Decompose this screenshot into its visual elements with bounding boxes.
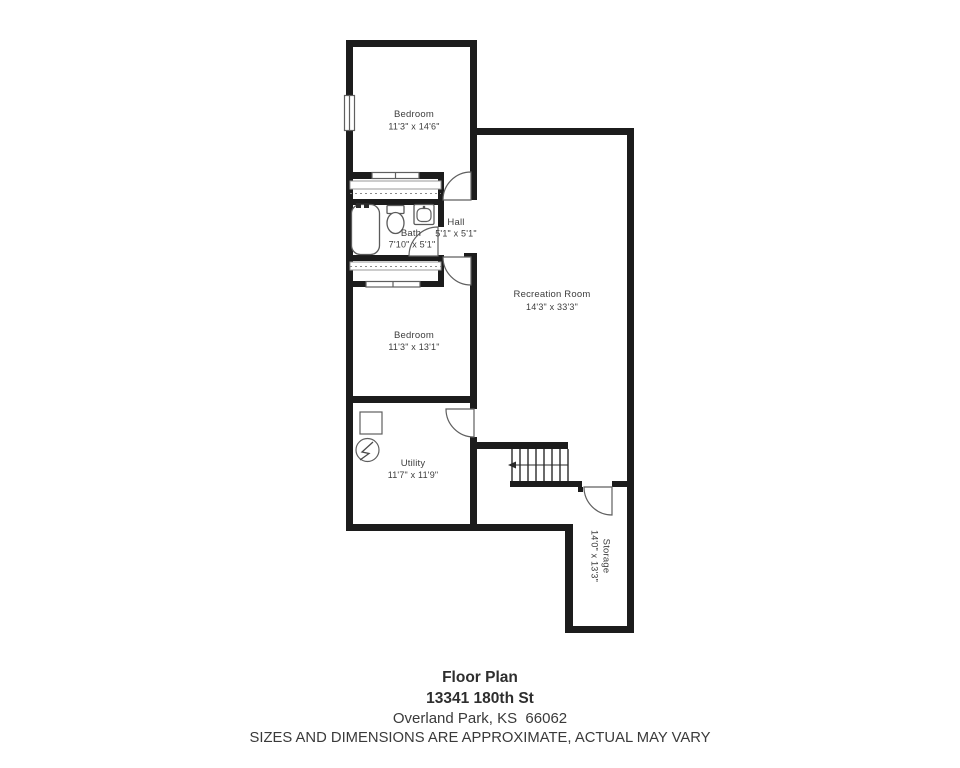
door-swing-utility — [446, 409, 474, 437]
room-label-hall: Hall — [447, 217, 464, 228]
room-label-utility: Utility — [401, 458, 426, 469]
plan-title: Floor Plan — [442, 669, 518, 686]
bathtub-icon — [352, 205, 380, 255]
address-line-1: 13341 180th St — [426, 690, 534, 707]
room-dims-recreation-room: 14'3" x 33'3" — [526, 302, 578, 312]
room-label-bedroom-2: Bedroom — [394, 330, 434, 341]
room-label-recreation-room: Recreation Room — [514, 289, 591, 300]
floor-plan-canvas: Bedroom 11'3" x 14'6" Bath 7'10" x 5'1" … — [0, 0, 960, 768]
staircase — [508, 449, 568, 481]
wall-segment — [565, 524, 573, 633]
door-swing-bedroom1 — [443, 172, 471, 200]
sink-faucet-icon — [423, 206, 426, 209]
closet-shelf — [350, 181, 441, 189]
room-label-storage-group: Storage 14'0" x 13'3" — [590, 530, 612, 582]
wall-segment — [612, 481, 634, 487]
room-dims-bedroom-1: 11'3" x 14'6" — [388, 122, 439, 132]
wall-segment — [346, 524, 573, 531]
lightning-bolt-icon — [360, 442, 373, 460]
wall-segment — [346, 172, 373, 179]
wall-segment — [346, 396, 477, 403]
wall-segment — [470, 437, 477, 531]
door-jamb — [578, 487, 583, 492]
wall-segment — [510, 481, 582, 487]
floor-plan-page: Bedroom 11'3" x 14'6" Bath 7'10" x 5'1" … — [0, 0, 960, 768]
room-dims-utility: 11'7" x 11'9" — [388, 470, 439, 480]
room-dims-bath: 7'10" x 5'1" — [389, 240, 436, 250]
utility-fixtures — [356, 412, 382, 462]
water-heater-icon — [360, 412, 382, 434]
tub-faucet-icon — [356, 203, 361, 208]
footer: Floor Plan 13341 180th St Overland Park,… — [249, 669, 710, 746]
disclaimer-text: SIZES AND DIMENSIONS ARE APPROXIMATE, AC… — [249, 730, 710, 746]
room-dims-bedroom-2: 11'3" x 13'1" — [388, 342, 439, 352]
wall-segment — [470, 128, 634, 135]
room-dims-storage: 14'0" x 13'3" — [590, 530, 600, 582]
wall-segment — [438, 199, 444, 227]
room-labels: Bedroom 11'3" x 14'6" Bath 7'10" x 5'1" … — [388, 109, 612, 582]
room-label-storage: Storage — [601, 539, 612, 574]
address-line-2: Overland Park, KS 66062 — [393, 710, 567, 727]
wall-segment — [346, 281, 367, 287]
wall-segment — [627, 128, 634, 633]
room-label-bath: Bath — [401, 228, 421, 239]
tub-faucet-icon — [364, 203, 369, 208]
wall-segment — [565, 626, 634, 633]
wall-segment — [470, 442, 568, 449]
electrical-panel-icon — [356, 439, 379, 462]
room-label-bedroom-1: Bedroom — [394, 109, 434, 120]
door-swing-bedroom2 — [443, 257, 471, 285]
door-swing-storage — [584, 487, 612, 515]
room-dims-hall: 5'1" x 5'1" — [435, 229, 477, 239]
wall-segment — [346, 40, 477, 47]
